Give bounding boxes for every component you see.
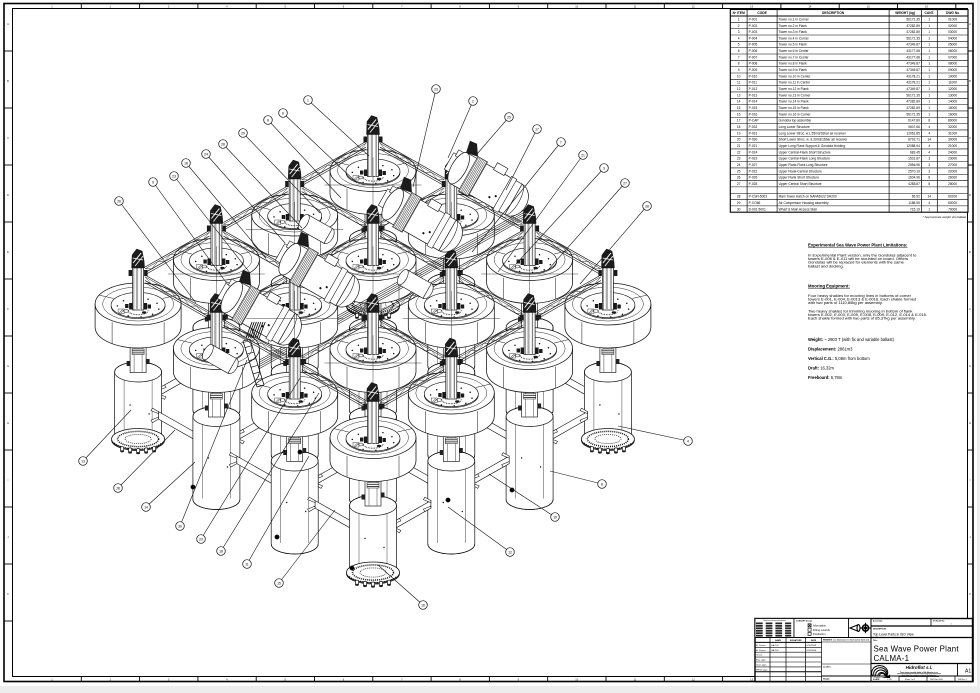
svg-text:1: 1 [928, 100, 930, 104]
svg-text:56171.35: 56171.35 [906, 112, 920, 116]
svg-text:1: 1 [928, 43, 930, 47]
svg-text:Mooring Equipment:: Mooring Equipment: [808, 284, 850, 289]
svg-text:P-015: P-015 [749, 106, 758, 110]
svg-text:P-CAP: P-CAP [749, 119, 759, 123]
svg-text:715.19: 715.19 [910, 207, 920, 211]
svg-text:K: K [7, 592, 9, 596]
svg-text:12000: 12000 [948, 87, 957, 91]
svg-text:P-CSN-5003: P-CSN-5003 [749, 195, 768, 199]
svg-text:8: 8 [928, 119, 930, 123]
svg-text:PROD appr.: PROD appr. [756, 668, 768, 671]
svg-text:Information: Information [813, 624, 827, 628]
svg-text:Sea Wave Power Plant: Sea Wave Power Plant [874, 645, 960, 654]
svg-text:P-010: P-010 [749, 74, 758, 78]
svg-text:P-001: P-001 [749, 17, 758, 21]
svg-text:24000: 24000 [948, 150, 957, 154]
svg-text:Eng. appr.: Eng. appr. [756, 659, 766, 662]
svg-text:P-005: P-005 [749, 43, 758, 47]
svg-text:Gondola top assembly: Gondola top assembly [779, 119, 812, 123]
svg-text:Upper Central-Flank Long Struc: Upper Central-Flank Long Structure [779, 157, 831, 161]
svg-text:WEIGHT (kg): WEIGHT (kg) [895, 11, 915, 15]
svg-text:9: 9 [152, 180, 154, 184]
svg-text:Hidroflot s.l.: Hidroflot s.l. [906, 665, 933, 670]
svg-text:28: 28 [645, 204, 649, 208]
svg-text:Upper Central Short Structure: Upper Central Short Structure [779, 182, 822, 186]
svg-text:Justifies:: Justifies: [823, 665, 832, 668]
svg-text:DWG No: 0000: DWG No: 0000 [930, 679, 943, 681]
svg-text:47349.87: 47349.87 [906, 87, 920, 91]
svg-text:Fitting network: Fitting network [813, 628, 831, 632]
svg-text:Upper Flank-Flank Long Structu: Upper Flank-Flank Long Structure [779, 163, 828, 167]
svg-text:4288.87: 4288.87 [908, 182, 920, 186]
svg-text:Short Lower Struc. w. 9,33m3/1: Short Lower Struc. w. 9,33m3/16bar air r… [779, 138, 849, 142]
svg-text:13: 13 [81, 459, 85, 463]
svg-text:12061.85: 12061.85 [906, 131, 920, 135]
svg-text:3: 3 [928, 163, 930, 167]
svg-text:15: 15 [737, 106, 741, 110]
svg-text:23: 23 [737, 157, 741, 161]
svg-text:16: 16 [421, 603, 425, 607]
svg-text:26: 26 [117, 199, 121, 203]
svg-text:4: 4 [687, 439, 689, 443]
svg-text:9: 9 [738, 68, 740, 72]
svg-text:Air Compressor Housing assembl: Air Compressor Housing assembly [779, 201, 829, 205]
svg-text:06000: 06000 [948, 49, 957, 53]
svg-text:30: 30 [737, 207, 741, 211]
svg-text:Freeboard: 6,78m: Freeboard: 6,78m [808, 375, 843, 380]
svg-text:10000: 10000 [948, 74, 957, 78]
svg-text:K: K [969, 592, 971, 596]
svg-text:2: 2 [472, 99, 474, 103]
svg-text:Main Tower Hatch on NAFA6022 D: Main Tower Hatch on NAFA6022 DH200 [779, 195, 837, 199]
svg-text:P-006: P-006 [749, 49, 758, 53]
svg-text:Top Level Parts in ISO View: Top Level Parts in ISO View [873, 633, 914, 637]
svg-text:14: 14 [144, 505, 148, 509]
svg-text:Upper Long Flank Support & Gon: Upper Long Flank Support & Gondola Holdi… [779, 144, 845, 148]
svg-text:22: 22 [737, 150, 741, 154]
svg-text:12: 12 [737, 87, 741, 91]
svg-text:Upper Central-Flank Short Stru: Upper Central-Flank Short Structure [779, 150, 831, 154]
svg-text:21: 21 [737, 144, 741, 148]
svg-text:P-031: P-031 [749, 131, 758, 135]
svg-text:P-003: P-003 [749, 30, 758, 34]
svg-text:2: 2 [738, 24, 740, 28]
svg-text:6: 6 [282, 111, 284, 115]
svg-text:43178.21: 43178.21 [906, 81, 920, 85]
svg-text:Tower no.6 in Center: Tower no.6 in Center [779, 49, 810, 53]
svg-text:25: 25 [507, 115, 511, 119]
svg-text:C: C [7, 136, 9, 140]
svg-text:E: E [969, 250, 971, 254]
svg-text:13000: 13000 [948, 93, 957, 97]
svg-text:Tower no.5 in Flank: Tower no.5 in Flank [779, 43, 808, 47]
svg-text:24: 24 [737, 163, 741, 167]
svg-text:1: 1 [950, 624, 951, 626]
svg-text:47282.89: 47282.89 [906, 106, 920, 110]
svg-text:Nº Model No.:: Nº Model No.: [933, 619, 946, 622]
svg-text:P-009: P-009 [749, 68, 758, 72]
svg-text:12: 12 [508, 550, 512, 554]
svg-text:P-002: P-002 [749, 24, 758, 28]
svg-text:47282.89: 47282.89 [906, 24, 920, 28]
svg-text:D: D [969, 193, 971, 197]
svg-text:4: 4 [928, 201, 930, 205]
svg-text:1531.87: 1531.87 [908, 157, 920, 161]
svg-text:23: 23 [172, 174, 176, 178]
svg-text:P-030: P-030 [749, 138, 758, 142]
svg-text:Weight: ~ 2903 T (with fix and: Weight: ~ 2903 T (with fix and variable … [808, 337, 895, 342]
svg-text:15000: 15000 [948, 106, 957, 110]
svg-text:P-027: P-027 [749, 163, 758, 167]
svg-text:1: 1 [928, 81, 930, 85]
svg-text:6/10/2008: 6/10/2008 [807, 645, 818, 647]
svg-text:47349.87: 47349.87 [906, 68, 920, 72]
svg-text:23: 23 [434, 87, 438, 91]
svg-text:28: 28 [116, 486, 120, 490]
svg-text:1: 1 [928, 36, 930, 40]
svg-text:22000: 22000 [948, 169, 957, 173]
svg-text:65.52: 65.52 [912, 195, 920, 199]
svg-text:El. Drawn: El. Drawn [756, 649, 766, 652]
svg-text:A: A [7, 22, 9, 26]
svg-text:El. Drawn: El. Drawn [756, 644, 766, 647]
svg-text:Upper Flank Short Structure: Upper Flank Short Structure [779, 176, 820, 180]
svg-text:24: 24 [204, 152, 208, 156]
svg-text:6: 6 [738, 49, 740, 53]
svg-text:* Approximate weight w/o balla: * Approximate weight w/o ballast [923, 215, 966, 219]
svg-text:28: 28 [221, 142, 225, 146]
svg-text:Experimental Sea Wave Power Pl: Experimental Sea Wave Power Plant Limita… [808, 243, 908, 248]
svg-text:CALMA-1: CALMA-1 [874, 654, 910, 663]
svg-text:Tower no.4 in Corner: Tower no.4 in Corner [779, 36, 810, 40]
svg-text:4: 4 [738, 36, 740, 40]
svg-text:P-023: P-023 [749, 157, 758, 161]
svg-text:NAME: NAME [775, 639, 782, 642]
svg-text:683.45: 683.45 [910, 150, 920, 154]
svg-text:P-022: P-022 [749, 169, 758, 173]
svg-text:80000: 80000 [948, 119, 957, 123]
svg-text:70000: 70000 [948, 207, 957, 211]
svg-text:Vertical C.G.: 5,08m from bott: Vertical C.G.: 5,08m from bottom [808, 356, 870, 361]
svg-text:1: 1 [928, 87, 930, 91]
svg-text:11: 11 [737, 81, 741, 85]
svg-text:1: 1 [928, 93, 930, 97]
svg-text:1: 1 [928, 55, 930, 59]
svg-text:8: 8 [928, 182, 930, 186]
svg-text:14: 14 [927, 138, 931, 142]
svg-text:14: 14 [737, 100, 741, 104]
svg-text:Wharf & Main Access Stair: Wharf & Main Access Stair [779, 207, 818, 211]
svg-text:5: 5 [738, 43, 740, 47]
svg-text:DWG No: DWG No [946, 11, 959, 15]
svg-text:1: 1 [928, 74, 930, 78]
svg-text:Production: Production [813, 632, 826, 636]
svg-text:31000: 31000 [948, 131, 957, 135]
svg-text:18: 18 [219, 549, 223, 553]
svg-text:Long Lower Structure: Long Lower Structure [779, 125, 810, 129]
svg-text:4: 4 [928, 125, 930, 129]
svg-text:01000: 01000 [948, 17, 957, 21]
svg-text:Torre mayor avenida bahia of l: Torre mayor avenida bahia of life Alaves… [900, 671, 939, 674]
svg-text:P-011: P-011 [749, 81, 758, 85]
svg-text:DIN Rev: 1: DIN Rev: 1 [958, 679, 967, 681]
svg-text:60200: 60200 [948, 195, 957, 199]
svg-text:3: 3 [603, 166, 605, 170]
svg-text:12088.94: 12088.94 [906, 144, 920, 148]
svg-text:7: 7 [560, 140, 562, 144]
svg-text:25: 25 [737, 169, 741, 173]
svg-text:1: 1 [307, 98, 309, 102]
svg-text:11000: 11000 [948, 81, 957, 85]
svg-text:3: 3 [928, 169, 930, 173]
svg-text:with two parts of 1110,85kg pe: with two parts of 1110,85kg per assembly… [808, 300, 883, 305]
svg-text:56171.35: 56171.35 [906, 93, 920, 97]
svg-text:Tower no.2 in Flank: Tower no.2 in Flank [779, 24, 808, 28]
svg-text:Tower no.12 in Flank: Tower no.12 in Flank [779, 87, 809, 91]
svg-text:P-007: P-007 [749, 55, 758, 59]
svg-text:P-016: P-016 [749, 112, 758, 116]
svg-text:Tower no.1 in Corner: Tower no.1 in Corner [779, 17, 810, 21]
svg-text:17: 17 [535, 127, 539, 131]
svg-text:Long Lower Struc. w.L 55m3/16b: Long Lower Struc. w.L 55m3/16bar air rec… [779, 131, 847, 135]
svg-text:4: 4 [928, 150, 930, 154]
svg-text:27: 27 [737, 182, 741, 186]
svg-text:P-014: P-014 [749, 100, 758, 104]
svg-text:Weight:: Weight: [823, 678, 830, 681]
svg-text:P-026: P-026 [749, 176, 758, 180]
svg-text:26: 26 [737, 176, 741, 180]
svg-text:8: 8 [267, 118, 269, 122]
svg-text:Tower no.16 in Corner: Tower no.16 in Corner [779, 112, 812, 116]
svg-text:D-001-5001: D-001-5001 [749, 207, 766, 211]
svg-text:CANT.: CANT. [925, 11, 935, 15]
svg-text:28000: 28000 [948, 182, 957, 186]
svg-text:Tower no.8 in Flank: Tower no.8 in Flank [779, 62, 808, 66]
svg-text:3: 3 [928, 157, 930, 161]
svg-text:4: 4 [928, 144, 930, 148]
svg-text:43177.68: 43177.68 [906, 55, 920, 59]
svg-text:Check: Check [756, 655, 763, 657]
svg-text:60000: 60000 [948, 201, 957, 205]
svg-text:DESCRIPTION:: DESCRIPTION: [873, 629, 887, 631]
svg-text:21: 21 [581, 153, 585, 157]
svg-text:6147.80: 6147.80 [908, 119, 920, 123]
svg-text:1: 1 [928, 24, 930, 28]
svg-text:Qual. appr.: Qual. appr. [756, 664, 767, 667]
svg-text:8: 8 [601, 482, 603, 486]
svg-text:D: D [7, 193, 9, 197]
svg-text:P-024: P-024 [749, 150, 758, 154]
svg-text:1: 1 [928, 17, 930, 21]
svg-text:15: 15 [277, 581, 281, 585]
svg-text:8792.71: 8792.71 [908, 138, 920, 142]
svg-text:4: 4 [928, 131, 930, 135]
svg-text:ballast and docking.: ballast and docking. [808, 263, 844, 268]
svg-text:P-012: P-012 [749, 87, 758, 91]
svg-text:P-021: P-021 [749, 144, 758, 148]
svg-text:1: 1 [738, 17, 740, 21]
svg-text:Tower no.15 in Flank: Tower no.15 in Flank [779, 106, 809, 110]
svg-text:23000: 23000 [948, 157, 957, 161]
svg-text:47349.87: 47349.87 [906, 43, 920, 47]
svg-text:04000: 04000 [948, 36, 957, 40]
svg-text:CONCEPT Design: CONCEPT Design [796, 621, 813, 623]
svg-text:11: 11 [245, 562, 249, 566]
svg-text:26000: 26000 [948, 176, 957, 180]
svg-text:19: 19 [553, 515, 557, 519]
svg-text:1: 1 [928, 49, 930, 53]
svg-text:P-013: P-013 [749, 93, 758, 97]
svg-text:Tower no.10 in Center: Tower no.10 in Center [779, 74, 812, 78]
svg-text:DATE: DATE [811, 639, 817, 642]
svg-text:9607.66: 9607.66 [908, 125, 920, 129]
svg-text:1: 1 [928, 112, 930, 116]
svg-text:2556.96: 2556.96 [908, 163, 920, 167]
svg-text:05000: 05000 [948, 43, 957, 47]
svg-text:Tower no.14 in Flank: Tower no.14 in Flank [779, 100, 809, 104]
svg-text:H: H [969, 421, 971, 425]
svg-text:P-032: P-032 [749, 125, 758, 129]
svg-text:29: 29 [241, 131, 245, 135]
svg-text:8: 8 [738, 62, 740, 66]
svg-text:A1: A1 [965, 669, 971, 675]
svg-text:A: A [969, 22, 971, 26]
svg-text:B: B [7, 79, 9, 83]
svg-text:1188.55: 1188.55 [908, 201, 920, 205]
svg-text:CODE: CODE [757, 11, 767, 15]
svg-text:Draft: 16,32m: Draft: 16,32m [808, 366, 835, 371]
svg-text:P-028: P-028 [749, 182, 758, 186]
svg-text:14: 14 [927, 195, 931, 199]
svg-text:Sheet 1 of 1: Sheet 1 of 1 [905, 678, 915, 681]
svg-text:H: H [7, 421, 9, 425]
svg-text:47282.89: 47282.89 [906, 30, 920, 34]
svg-text:GA-702: GA-702 [771, 644, 779, 647]
svg-text:3: 3 [738, 30, 740, 34]
svg-text:47349.87: 47349.87 [906, 62, 920, 66]
svg-text:09000: 09000 [948, 68, 957, 72]
svg-text:1: 1 [928, 207, 930, 211]
svg-text:P-004: P-004 [749, 36, 758, 40]
svg-text:Each shakle formed with two pa: Each shakle formed with two parts of 85,… [808, 316, 916, 321]
svg-text:30: 30 [178, 524, 182, 528]
svg-text:20: 20 [737, 138, 741, 142]
svg-text:1: 1 [928, 106, 930, 110]
svg-text:47282.89: 47282.89 [906, 100, 920, 104]
svg-text:19: 19 [737, 131, 741, 135]
svg-text:8: 8 [928, 176, 930, 180]
svg-text:Upper Flank-Central Structure: Upper Flank-Central Structure [779, 169, 823, 173]
svg-text:Tower no.13 in Corner: Tower no.13 in Corner [779, 93, 812, 97]
svg-text:29: 29 [737, 201, 741, 205]
svg-text:16: 16 [737, 112, 741, 116]
svg-text:07000: 07000 [948, 55, 957, 59]
svg-text:27000: 27000 [948, 163, 957, 167]
svg-text:21000: 21000 [948, 144, 957, 148]
svg-text:SIGNATURE: SIGNATURE [790, 639, 802, 642]
svg-text:56171.35: 56171.35 [906, 17, 920, 21]
svg-text:18: 18 [737, 125, 741, 129]
svg-text:30000: 30000 [948, 138, 957, 142]
svg-text:GA-702: GA-702 [771, 649, 779, 652]
svg-text:Nº ITEM: Nº ITEM [733, 11, 745, 15]
svg-text:02000: 02000 [948, 24, 957, 28]
svg-text:23: 23 [199, 537, 203, 541]
svg-text:Tower no.7 in Center: Tower no.7 in Center [779, 55, 810, 59]
svg-text:10: 10 [737, 74, 741, 78]
svg-text:08000: 08000 [948, 62, 957, 66]
svg-text:DESCRIPTION: DESCRIPTION [822, 11, 845, 15]
svg-text:16000: 16000 [948, 112, 957, 116]
svg-text:B: B [969, 79, 971, 83]
svg-text:1: 1 [928, 62, 930, 66]
svg-text:7: 7 [738, 55, 740, 59]
svg-text:2570.19: 2570.19 [908, 169, 920, 173]
svg-text:13: 13 [737, 93, 741, 97]
svg-text:P-008: P-008 [749, 62, 758, 66]
svg-text:1604.96: 1604.96 [908, 176, 920, 180]
svg-text:G: G [7, 364, 9, 368]
svg-text:43177.68: 43177.68 [906, 49, 920, 53]
svg-text:P-CO66: P-CO66 [749, 201, 761, 205]
svg-text:Displacement: 2861m3: Displacement: 2861m3 [808, 347, 853, 352]
svg-text:Tower no.11 in Center: Tower no.11 in Center [779, 81, 811, 85]
svg-text:Tower no.3 in Flank: Tower no.3 in Flank [779, 30, 808, 34]
svg-text:43178.21: 43178.21 [906, 74, 920, 78]
svg-text:dont plant for systems closed: dont plant for systems closed t thd phys… [902, 674, 937, 677]
svg-text:6/10/2008: 6/10/2008 [807, 650, 818, 652]
svg-text:14000: 14000 [948, 100, 957, 104]
svg-text:32000: 32000 [948, 125, 957, 129]
svg-text:E: E [7, 250, 9, 254]
svg-text:1: 1 [928, 68, 930, 72]
svg-text:17: 17 [737, 119, 741, 123]
svg-text:03000: 03000 [948, 30, 957, 34]
svg-text:C: C [969, 136, 971, 140]
svg-text:56171.35: 56171.35 [906, 36, 920, 40]
svg-text:REMARKS: use dimensions in she: REMARKS: use dimensions in sheet and-in … [823, 639, 869, 642]
svg-text:Tower no.9 in Flank: Tower no.9 in Flank [779, 68, 808, 72]
svg-text:28: 28 [737, 195, 741, 199]
svg-text:G: G [969, 364, 971, 368]
svg-text:27: 27 [623, 181, 627, 185]
svg-text:SCALE: SCALE [873, 678, 880, 681]
svg-text:Title:: Title: [873, 639, 878, 642]
svg-text:1: 1 [928, 30, 930, 34]
svg-text:18: 18 [184, 161, 188, 165]
svg-text:Assembly:: Assembly: [873, 619, 883, 622]
svg-text:1:170: 1:170 [887, 679, 892, 681]
